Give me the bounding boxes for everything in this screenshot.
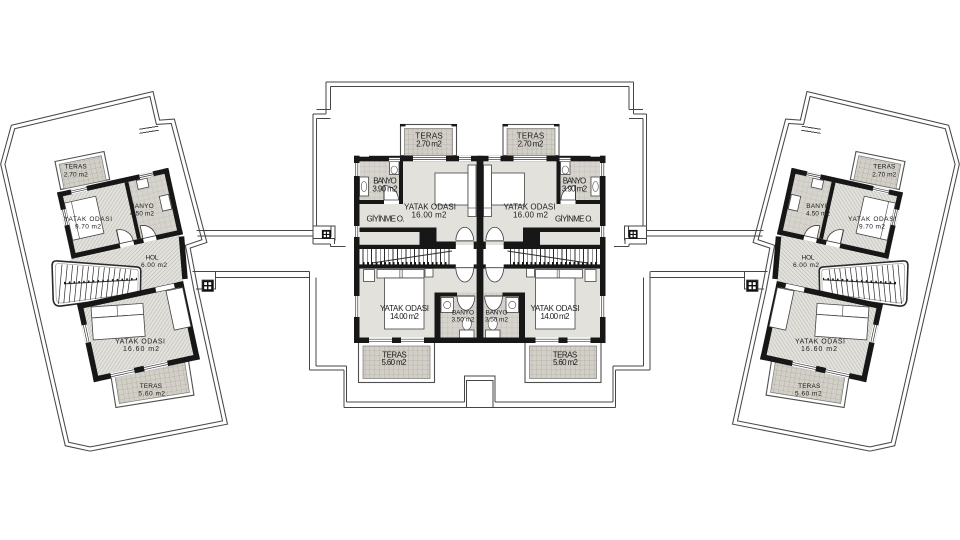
svg-text:16.60 m2: 16.60 m2 bbox=[801, 346, 837, 353]
svg-text:14.00 m2: 14.00 m2 bbox=[390, 312, 420, 321]
svg-text:GİYİNME O.: GİYİNME O. bbox=[367, 215, 405, 224]
svg-text:5.60 m2: 5.60 m2 bbox=[795, 391, 822, 398]
svg-text:HOL: HOL bbox=[802, 255, 815, 262]
svg-text:4.50 m2: 4.50 m2 bbox=[130, 211, 154, 218]
svg-text:6.00 m2: 6.00 m2 bbox=[141, 262, 167, 269]
svg-text:6.00 m2: 6.00 m2 bbox=[793, 262, 819, 269]
svg-text:16.00 m2: 16.00 m2 bbox=[412, 211, 448, 220]
svg-text:BANYO: BANYO bbox=[130, 203, 153, 210]
svg-text:BANYO: BANYO bbox=[452, 310, 474, 317]
svg-text:16.60 m2: 16.60 m2 bbox=[123, 346, 159, 353]
svg-text:YATAK ODASI: YATAK ODASI bbox=[115, 339, 165, 346]
svg-text:HOL: HOL bbox=[146, 255, 159, 262]
svg-text:2.70 m2: 2.70 m2 bbox=[518, 140, 544, 149]
svg-text:3.50 m2: 3.50 m2 bbox=[452, 317, 475, 324]
svg-text:16.00 m2: 16.00 m2 bbox=[513, 211, 549, 220]
svg-text:TERAS: TERAS bbox=[65, 164, 88, 171]
svg-text:5.60 m2: 5.60 m2 bbox=[553, 358, 579, 367]
svg-text:2.70 m2: 2.70 m2 bbox=[416, 140, 442, 149]
svg-text:BANYO: BANYO bbox=[806, 203, 829, 210]
svg-text:14.00 m2: 14.00 m2 bbox=[541, 312, 571, 321]
svg-text:TERAS: TERAS bbox=[140, 383, 163, 390]
svg-text:BANYO: BANYO bbox=[486, 310, 508, 317]
svg-text:5.60 m2: 5.60 m2 bbox=[138, 391, 165, 398]
svg-text:TERAS: TERAS bbox=[873, 164, 896, 171]
svg-text:YATAK ODASI: YATAK ODASI bbox=[848, 216, 896, 223]
svg-text:3.50 m2: 3.50 m2 bbox=[485, 317, 508, 324]
svg-text:YATAK ODASI: YATAK ODASI bbox=[795, 339, 845, 346]
svg-text:9.70 m2: 9.70 m2 bbox=[859, 224, 885, 231]
svg-text:TERAS: TERAS bbox=[798, 383, 821, 390]
svg-text:2.70 m2: 2.70 m2 bbox=[64, 172, 88, 179]
svg-text:GİYİNME O.: GİYİNME O. bbox=[555, 215, 593, 224]
svg-text:5.60 m2: 5.60 m2 bbox=[382, 358, 408, 367]
svg-text:YATAK ODASI: YATAK ODASI bbox=[64, 216, 112, 223]
svg-text:4.50 m2: 4.50 m2 bbox=[806, 211, 830, 218]
svg-text:3.90 m2: 3.90 m2 bbox=[372, 185, 398, 194]
svg-text:3.90 m2: 3.90 m2 bbox=[562, 185, 588, 194]
svg-text:9.70 m2: 9.70 m2 bbox=[75, 224, 101, 231]
svg-text:2.70 m2: 2.70 m2 bbox=[872, 172, 896, 179]
